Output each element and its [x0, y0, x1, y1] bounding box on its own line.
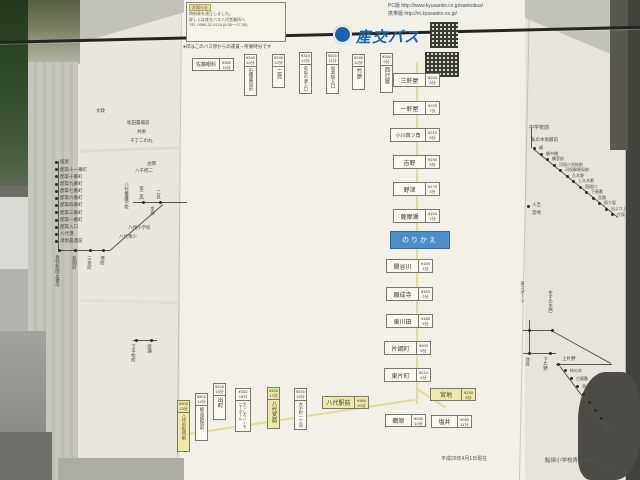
revision-date: 平成29年4月1日現在: [441, 455, 487, 462]
fare-box: ¥2106分: [416, 369, 430, 381]
stop-name: 八代駅前: [323, 397, 354, 408]
route-line: [556, 364, 612, 365]
destination-label: 宮崎: [532, 211, 541, 216]
stop-label: 古屋敷: [576, 377, 588, 381]
stop-dot: [611, 213, 614, 216]
stop-dot: [528, 329, 531, 332]
stop-dot: [585, 191, 588, 194]
stop-box-highlighted: ¥30013分 八代市役所前: [177, 400, 190, 452]
left-route-stop-list: 塩屋 郡築十一番町 郡築十番町 郡築九番町 郡築七番町 郡築六番町 郡築四番町 …: [55, 159, 87, 245]
stop-label: 柿の木: [570, 369, 582, 373]
stop-label: 三条町: [87, 256, 92, 276]
stop-label: 港町: [100, 256, 105, 270]
stop-dot: [564, 369, 567, 372]
fare-box: ¥2408分: [461, 389, 475, 400]
route-line: [531, 128, 532, 148]
bus-stop-map-photo: お知らせ 時刻表を改正しました。 詳しくは産交バス八代営業所へ TEL 0965…: [0, 0, 640, 480]
stop-label: 鶴: [539, 146, 543, 150]
stop-label: 大平: [600, 409, 608, 413]
route-stop: 郡築九番町: [55, 181, 87, 188]
sanko-logo-icon: [333, 25, 352, 44]
stop-name: 出町: [216, 397, 222, 408]
stop-box: 片鋼町 ¥2005分: [384, 341, 431, 355]
route-stop: 須恵農連前: [55, 238, 87, 245]
stop-name: 坂本駅入口: [330, 66, 335, 89]
fare-box: ¥34018分: [295, 389, 306, 401]
stop-label: 泉スポーツ: [520, 281, 525, 325]
stop-label: ゆすの木西: [548, 290, 553, 330]
destination-label: 人吉: [532, 203, 541, 208]
fare-box: ¥1703分: [425, 183, 439, 195]
stop-dot: [600, 417, 603, 420]
fare-box: ¥1905分: [425, 156, 439, 168]
route-stop: 郡築七番町: [55, 188, 87, 195]
stop-name: 鶴原: [386, 415, 411, 426]
stop-label: 池谷: [525, 357, 530, 373]
stop-label: 河俣郵便局前: [565, 168, 589, 172]
fare-box: ¥1502分: [425, 210, 439, 222]
background-street: [0, 269, 28, 331]
stop-dot: [588, 401, 591, 404]
stop-box: 願成寺 ¥1602分: [386, 287, 433, 301]
stop-box: ¥30011分 坂本駅入口: [326, 52, 339, 94]
stop-name: 小川四ツ角: [391, 129, 425, 141]
fare-box: ¥30011分: [327, 53, 338, 65]
pc-url: PC版 http://www.kyusanko.co.jp/sankobus/: [388, 2, 483, 9]
stop-dot: [605, 208, 608, 211]
stop-box: 塩井 ¥28011分: [431, 415, 472, 428]
stop-name: 八代宮前: [270, 401, 276, 423]
stop-box: ¥34014分 石橋薬局前: [244, 54, 257, 96]
stop-name: 大手町一丁目: [298, 402, 303, 427]
stop-name: 片鋼町: [385, 342, 416, 354]
route-stop: 塩屋: [55, 159, 87, 166]
stop-dot: [150, 339, 153, 342]
stop-label: 八代青少: [119, 235, 137, 240]
stop-name: 東川田: [387, 315, 418, 327]
stop-name: 総合病院前: [199, 407, 204, 430]
stop-dot: [55, 233, 58, 236]
stop-label: 振り坂: [604, 201, 616, 205]
stop-label: 私の木地蔵前: [531, 138, 558, 143]
stop-dot: [540, 153, 543, 156]
stop-name: 野津: [394, 183, 425, 195]
stop-label: 柊入: [594, 401, 602, 405]
stop-dot: [102, 249, 105, 252]
route-stop: 郡築一番町: [55, 217, 87, 224]
stop-box: ¥33016分 やつしろハーモニーホール: [235, 388, 251, 432]
house-wall: [0, 197, 28, 269]
route-line: [529, 320, 530, 354]
stop-dot: [570, 377, 573, 380]
fare-box: ¥36020分: [354, 397, 368, 408]
location-label: 鮎帰小学校青少分校: [545, 456, 595, 464]
stop-label: 片俣: [617, 213, 625, 217]
stop-box-highlighted: ¥33017分 八代宮前: [267, 387, 280, 429]
stop-box: 吉野 ¥1905分: [393, 155, 440, 169]
stop-dot: [566, 175, 569, 178]
stop-dot: [528, 352, 531, 355]
stop-dot: [592, 197, 595, 200]
stop-box: 鶴原 ¥26010分: [385, 414, 426, 427]
stop-dot: [572, 180, 575, 183]
stop-label: 第二高: [139, 186, 144, 200]
route-stop: 郡築十一番町: [55, 166, 87, 173]
brand-title: 産交バス: [356, 26, 420, 47]
route-stop: 八代港: [55, 231, 87, 238]
fare-box: ¥26010分: [411, 415, 425, 426]
stop-name: 石橋薬局前: [248, 68, 253, 91]
area-label: 共栄: [137, 130, 146, 135]
stop-label: 出より上: [611, 207, 627, 211]
stop-label: 鶴宮前: [552, 157, 564, 161]
stop-box: ¥28010分 竹原: [352, 54, 365, 90]
poster-left-sheet: [76, 0, 182, 462]
stop-name: 願成寺: [387, 288, 418, 300]
stop-box: 三軒屋 ¥2408分: [393, 73, 440, 87]
fare-box: ¥33013分: [273, 55, 284, 67]
mossy-concrete: [28, 0, 80, 64]
stop-name: 二見: [275, 68, 281, 79]
area-label: 千丁二の丸: [130, 139, 153, 144]
fare-box: ¥31012分: [300, 53, 311, 65]
stop-dot: [55, 204, 58, 207]
stop-dot: [533, 147, 536, 150]
fare-box: ¥1501分: [418, 260, 432, 272]
stop-box: ¥2609分 西行屋: [380, 53, 393, 93]
stop-name: 塩井: [432, 416, 457, 427]
area-label: 松田農場前: [127, 121, 150, 126]
fare-box: ¥1804分: [418, 315, 432, 327]
stop-dot: [55, 183, 58, 186]
stop-dot: [55, 175, 58, 178]
fare-box: ¥1602分: [418, 288, 432, 300]
stop-box: 関谷川 ¥1501分: [386, 259, 433, 273]
stop-box: 小川四ツ角 ¥2106分: [390, 128, 440, 142]
current-stop-box: のりかえ: [390, 231, 450, 249]
stop-dot: [55, 219, 58, 222]
stop-dot: [553, 164, 556, 167]
asphalt-patch: [0, 432, 52, 480]
stop-dot: [58, 249, 61, 252]
stop-label: 日田地: [588, 393, 600, 397]
stop-dot: [55, 190, 58, 193]
stop-box: 薩摩瀬 ¥1502分: [393, 209, 440, 223]
qr-code-icon: [430, 22, 458, 48]
fare-box: ¥30013分: [178, 401, 189, 413]
stop-dot: [135, 339, 138, 342]
stop-label: 上片野: [562, 357, 576, 362]
stop-dot: [546, 158, 549, 161]
stop-label: 渡瀬: [147, 344, 152, 358]
stop-name: 吉野: [394, 156, 425, 168]
mobile-url: 携帯版 http://m.kyusanko.co.jp/: [388, 10, 457, 17]
stop-label: 上久木野: [578, 179, 594, 183]
stop-name: 西行屋: [383, 67, 389, 84]
stop-dot: [55, 211, 58, 214]
stop-name: 東片町: [385, 369, 416, 381]
fare-box: ¥2207分: [425, 102, 439, 114]
house-roof: [0, 186, 28, 197]
notice-line: TEL 0965-32-9116 (8:30～17:30): [189, 22, 283, 27]
stop-dot: [559, 169, 562, 172]
route-stop: 郡築四番町: [55, 202, 87, 209]
stop-label: 下片野: [543, 357, 548, 377]
stop-box: 東片町 ¥2106分: [384, 368, 431, 382]
fare-box: ¥33016分: [236, 389, 250, 401]
stop-box: 東川田 ¥1804分: [386, 314, 433, 328]
route-stop: 郡築入口: [55, 224, 87, 231]
stop-box: 一軒屋 ¥2207分: [393, 101, 440, 115]
stop-dot: [55, 197, 58, 200]
stop-dot: [159, 201, 162, 204]
fare-box: ¥30014分: [196, 394, 207, 406]
stop-name: 宮地: [431, 389, 461, 400]
stop-box: ¥30014分 総合病院前: [195, 393, 208, 441]
location-label-extra: 川岳: [600, 466, 610, 473]
stop-dot: [55, 226, 58, 229]
trees: [0, 0, 30, 188]
fare-box: ¥32015分: [214, 384, 225, 396]
stop-name: 竹原: [355, 68, 361, 79]
stop-name: 関谷川: [387, 260, 418, 272]
route-stop: 郡築十番町: [55, 173, 87, 180]
fare-box: ¥28011分: [457, 416, 471, 427]
stop-dot: [576, 385, 579, 388]
frame-right-shadow: [610, 0, 628, 150]
stop-name: やつしろハーモニーホール: [239, 402, 247, 431]
fare-box: ¥34014分: [245, 55, 256, 67]
fare-box: ¥2609分: [381, 54, 392, 66]
stop-box: ¥34018分 大手町一丁目: [294, 388, 307, 430]
fare-box: ¥2005分: [416, 342, 430, 354]
stop-name: 一軒屋: [394, 102, 425, 114]
stop-dot: [579, 186, 582, 189]
stop-label: 下屋敷: [591, 190, 603, 194]
stop-dot: [598, 202, 601, 205]
area-label: 古閑: [147, 162, 156, 167]
fare-note: ●印はこのバス停からの運賃・所要時分です: [183, 45, 271, 50]
stop-box-highlighted: 宮地 ¥2408分: [430, 388, 476, 401]
fare-box: ¥2408分: [425, 74, 439, 86]
stop-label: 南川内: [606, 417, 618, 421]
stop-dot: [549, 352, 552, 355]
stop-name: 佐藤眼科: [193, 59, 219, 70]
stop-dot: [55, 240, 58, 243]
stop-label: 八代小学校: [128, 226, 151, 231]
route-stop: 郡築三番町: [55, 209, 87, 216]
stop-name: 三軒屋: [394, 74, 425, 86]
fare-box: ¥28010分: [353, 55, 364, 67]
stop-label: 二見: [156, 190, 161, 200]
notice-box: お知らせ 時刻表を改正しました。 詳しくは産交バス八代営業所へ TEL 0965…: [186, 2, 286, 42]
stop-box: ¥33013分 二見: [272, 54, 285, 88]
stop-label: 貨物税関支署前: [55, 255, 60, 301]
stop-name: 薩摩瀬: [394, 210, 425, 222]
destination-label: 水俣: [150, 206, 155, 216]
stop-dot: [527, 205, 530, 208]
fare-box: ¥36015分: [219, 59, 233, 70]
stop-label: 中学校前: [529, 126, 549, 131]
stop-label: 八代養護学校: [124, 182, 129, 220]
stop-dot: [582, 393, 585, 396]
stop-box: ¥32015分 出町: [213, 383, 226, 420]
stop-box: 野津 ¥1703分: [393, 182, 440, 196]
stop-name: 名坂の渡入口: [303, 66, 308, 91]
stop-box-highlighted: 八代駅前 ¥36020分: [322, 396, 369, 409]
stop-label: 下平松町: [131, 344, 136, 370]
stop-dot: [55, 161, 58, 164]
area-label: 八千把二: [135, 169, 153, 174]
stop-label: 新開町: [72, 256, 77, 276]
fare-box: ¥33017分: [268, 388, 279, 400]
stop-label: 草水: [582, 385, 590, 389]
stop-dot: [89, 249, 92, 252]
stop-dot: [594, 409, 597, 412]
fare-box: ¥2106分: [425, 129, 439, 141]
shadow-under-poster: [58, 458, 184, 480]
stop-box: ¥31012分 名坂の渡入口: [299, 52, 312, 94]
stop-box: 佐藤眼科 ¥36015分: [192, 58, 234, 71]
stop-dot: [74, 249, 77, 252]
stop-name: 八代市役所前: [181, 414, 186, 440]
area-label: 文政: [96, 109, 105, 114]
stop-dot: [55, 168, 58, 171]
stop-dot: [142, 201, 145, 204]
